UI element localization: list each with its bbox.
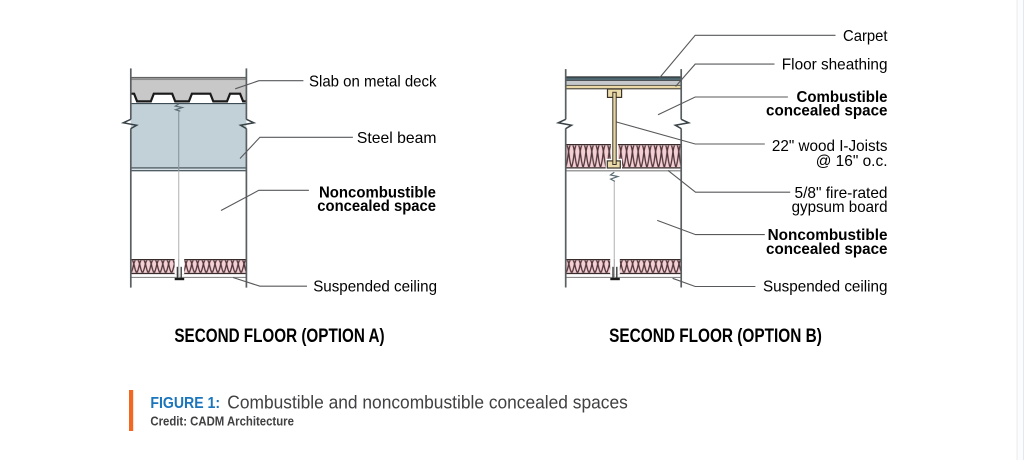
svg-text:Suspended ceiling: Suspended ceiling	[313, 279, 437, 296]
svg-text:SECOND FLOOR (OPTION A): SECOND FLOOR (OPTION A)	[174, 326, 384, 347]
svg-text:concealed space: concealed space	[317, 198, 436, 215]
svg-text:Combustible and noncombustible: Combustible and noncombustible concealed…	[227, 393, 628, 413]
svg-text:@ 16" o.c.: @ 16" o.c.	[816, 153, 888, 170]
svg-text:Credit: CADM Architecture: Credit: CADM Architecture	[150, 413, 294, 428]
svg-text:Steel beam: Steel beam	[357, 130, 437, 147]
svg-text:SECOND FLOOR (OPTION B): SECOND FLOOR (OPTION B)	[609, 326, 822, 347]
svg-text:gypsum board: gypsum board	[792, 199, 888, 216]
svg-text:FIGURE 1:: FIGURE 1:	[150, 395, 220, 412]
svg-text:concealed space: concealed space	[766, 103, 888, 120]
svg-text:concealed space: concealed space	[766, 241, 888, 258]
svg-text:Slab on metal deck: Slab on metal deck	[309, 74, 437, 91]
svg-text:Carpet: Carpet	[843, 28, 888, 45]
svg-text:Floor sheathing: Floor sheathing	[782, 57, 888, 74]
svg-text:Suspended ceiling: Suspended ceiling	[763, 279, 888, 296]
